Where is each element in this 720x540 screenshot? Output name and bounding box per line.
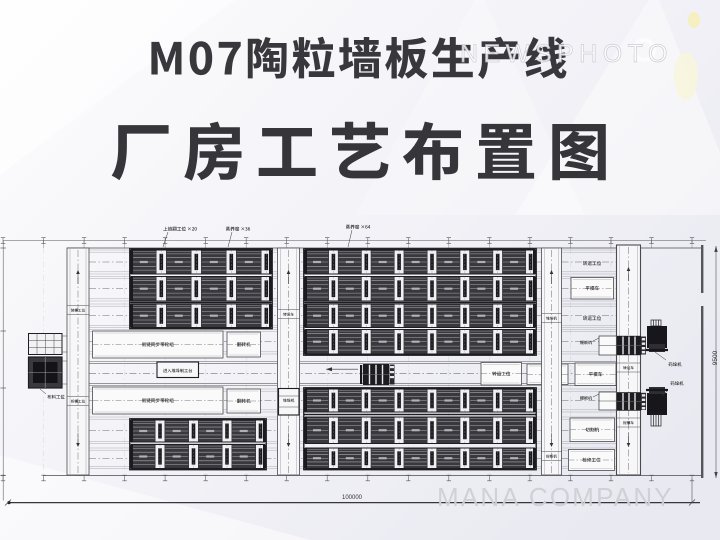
svg-text:9500: 9500 — [712, 350, 719, 365]
svg-text:100000: 100000 — [342, 495, 363, 501]
